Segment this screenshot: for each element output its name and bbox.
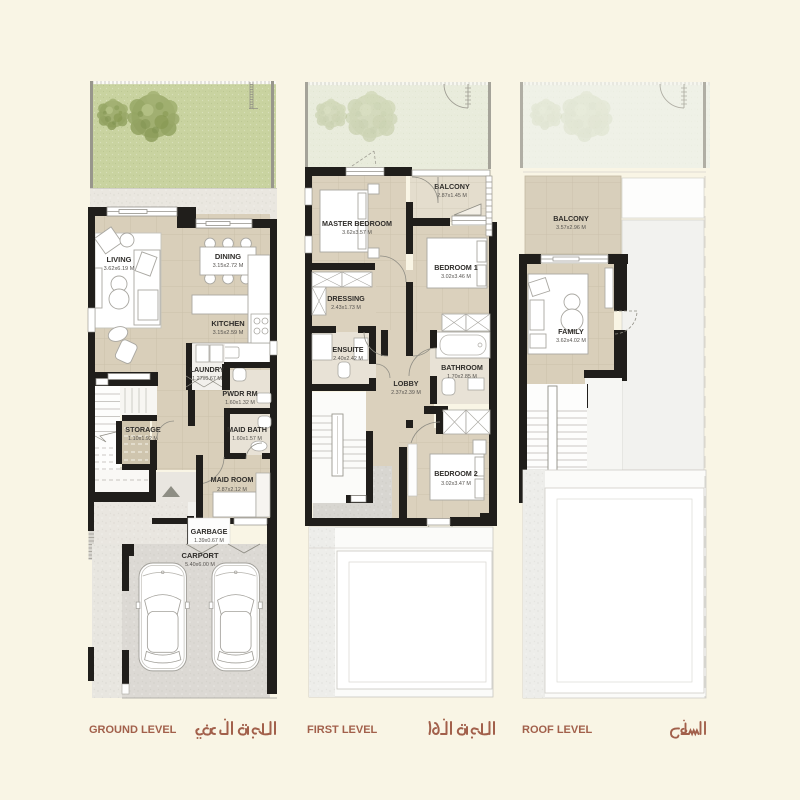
- svg-text:DRESSING: DRESSING: [327, 294, 365, 303]
- svg-text:2.37x2.39 M: 2.37x2.39 M: [391, 390, 421, 396]
- svg-text:3.62x4.02 M: 3.62x4.02 M: [556, 338, 586, 344]
- svg-text:FAMILY: FAMILY: [558, 327, 584, 336]
- svg-text:1.10x1.92 M: 1.10x1.92 M: [128, 436, 158, 442]
- svg-text:LAUNDRY: LAUNDRY: [190, 365, 225, 374]
- svg-text:1.60x1.57 M: 1.60x1.57 M: [232, 436, 262, 442]
- svg-text:MASTER BEDROOM: MASTER BEDROOM: [322, 219, 392, 228]
- svg-text:BALCONY: BALCONY: [434, 182, 470, 191]
- svg-text:LOBBY: LOBBY: [393, 379, 418, 388]
- svg-text:2.43x1.73 M: 2.43x1.73 M: [331, 305, 361, 311]
- svg-text:1.60x1.32 M: 1.60x1.32 M: [225, 400, 255, 406]
- svg-text:5.40x6.00 M: 5.40x6.00 M: [185, 562, 215, 568]
- svg-text:CARPORT: CARPORT: [181, 551, 219, 560]
- svg-text:DINING: DINING: [215, 252, 241, 261]
- svg-text:1.39x0.67 M: 1.39x0.67 M: [194, 538, 224, 544]
- svg-text:GROUND LEVEL: GROUND LEVEL: [89, 724, 177, 736]
- svg-text:1.27x0.67 M: 1.27x0.67 M: [192, 376, 222, 382]
- svg-text:1.70x2.85 M: 1.70x2.85 M: [447, 374, 477, 380]
- svg-text:2.40x2.42 M: 2.40x2.42 M: [333, 356, 363, 362]
- svg-text:BEDROOM 2: BEDROOM 2: [434, 469, 478, 478]
- svg-text:BALCONY: BALCONY: [553, 214, 589, 223]
- svg-text:ENSUITE: ENSUITE: [332, 345, 363, 354]
- svg-text:BEDROOM 1: BEDROOM 1: [434, 263, 478, 272]
- svg-text:3.15x2.59 M: 3.15x2.59 M: [213, 330, 244, 336]
- svg-text:MAID ROOM: MAID ROOM: [211, 475, 254, 484]
- svg-text:3.57x2.96 M: 3.57x2.96 M: [556, 225, 586, 231]
- svg-text:3.02x3.47 M: 3.02x3.47 M: [441, 481, 471, 487]
- svg-text:STORAGE: STORAGE: [125, 425, 161, 434]
- svg-text:2.87x1.45 M: 2.87x1.45 M: [437, 193, 467, 199]
- svg-text:3.62x3.57 M: 3.62x3.57 M: [342, 230, 372, 236]
- svg-text:3.15x2.72 M: 3.15x2.72 M: [213, 263, 244, 269]
- svg-text:ROOF LEVEL: ROOF LEVEL: [522, 724, 593, 736]
- svg-text:FIRST LEVEL: FIRST LEVEL: [307, 724, 378, 736]
- svg-text:BATHROOM: BATHROOM: [441, 363, 483, 372]
- svg-text:PWDR RM: PWDR RM: [222, 389, 257, 398]
- svg-text:3.62x6.19 M: 3.62x6.19 M: [104, 266, 135, 272]
- svg-text:LIVING: LIVING: [106, 255, 131, 264]
- svg-text:3.02x3.46 M: 3.02x3.46 M: [441, 274, 471, 280]
- svg-text:GARBAGE: GARBAGE: [191, 527, 228, 536]
- svg-text:2.87x2.12 M: 2.87x2.12 M: [217, 487, 247, 493]
- svg-text:KITCHEN: KITCHEN: [211, 319, 244, 328]
- svg-text:MAID BATH: MAID BATH: [227, 425, 267, 434]
